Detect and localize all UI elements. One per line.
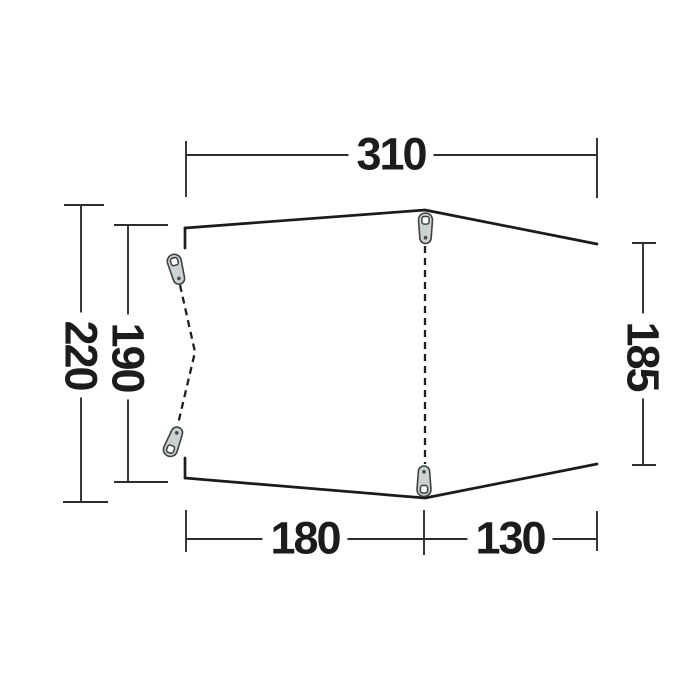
dim-220-label: 220 <box>59 312 104 397</box>
guy-point-peg-icon-top-left <box>166 253 187 286</box>
tent-bottom-edge <box>185 464 597 498</box>
guy-point-peg-icon-top-center <box>419 213 433 244</box>
tent-outline <box>178 210 597 498</box>
guy-point-peg-icon-bottom-left <box>161 425 185 458</box>
dim-180-label: 180 <box>262 516 347 561</box>
dim-310-label: 310 <box>348 132 433 177</box>
tent-top-edge <box>185 210 597 244</box>
dim-185-label: 185 <box>621 313 666 398</box>
dim-130-label: 130 <box>467 516 552 561</box>
tent-dimension-diagram: 310 220 190 185 180 130 <box>0 0 700 700</box>
guy-point-peg-icon-bottom-center <box>417 466 431 497</box>
door-opening-dashed-line <box>178 285 195 424</box>
dim-190-label: 190 <box>106 314 151 399</box>
